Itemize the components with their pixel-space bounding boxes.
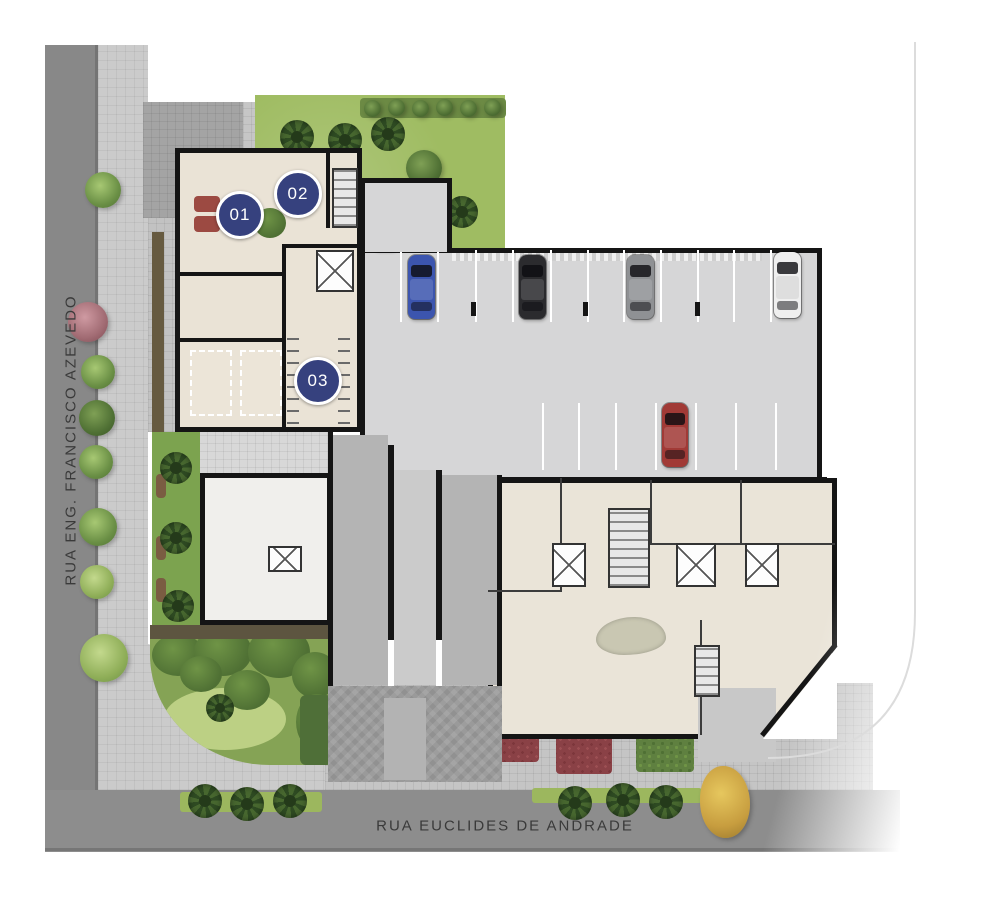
street-name-left: RUA ENG. FRANCISCO AZEVEDO: [63, 294, 80, 585]
site-plan: 01 02 03 RUA ENG. FRANCISCO AZEVEDO RUA …: [0, 0, 1000, 903]
unit-badge-01: 01: [216, 191, 264, 239]
unit-badge-02: 02: [274, 170, 322, 218]
unit-badge-01-label: 01: [230, 205, 251, 225]
street-name-bottom: RUA EUCLIDES DE ANDRADE: [376, 818, 634, 835]
lot-boundary-line: [0, 0, 1000, 903]
unit-badge-02-label: 02: [288, 184, 309, 204]
unit-badge-03: 03: [294, 357, 342, 405]
unit-badge-03-label: 03: [308, 371, 329, 391]
